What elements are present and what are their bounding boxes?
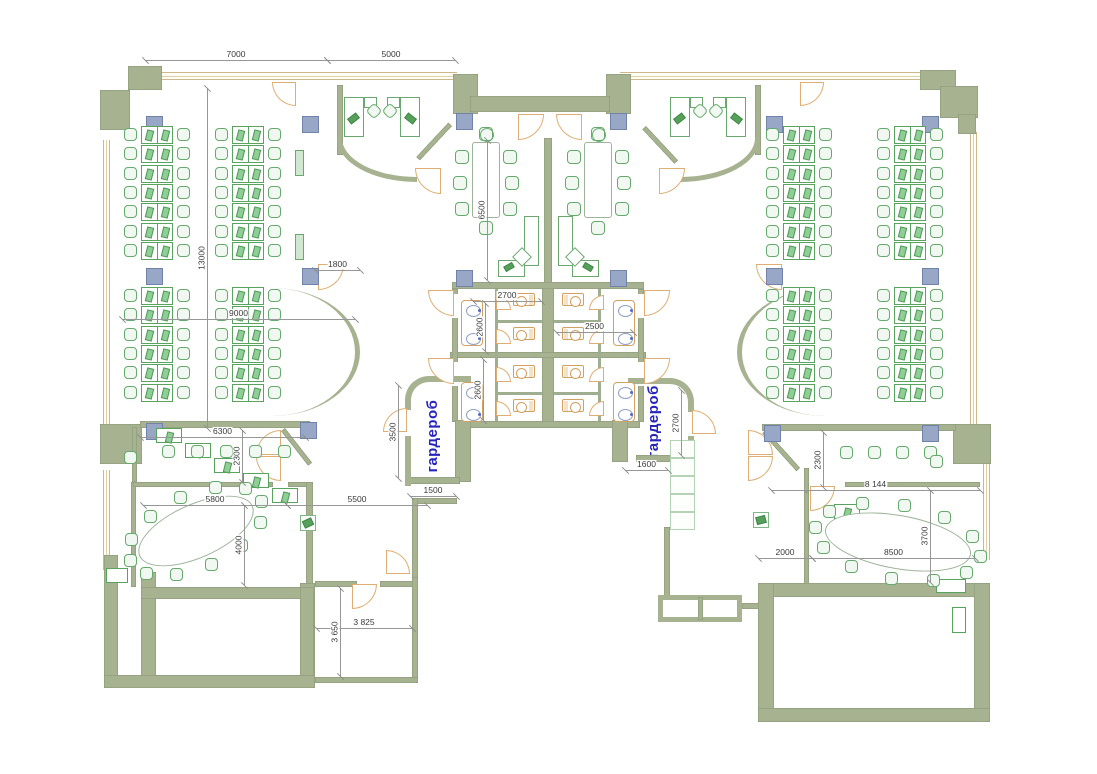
double-desk	[232, 145, 264, 163]
desk-half	[911, 166, 926, 182]
chair	[215, 128, 228, 141]
door-swing	[748, 456, 773, 481]
double-desk	[232, 203, 264, 221]
chair	[177, 328, 190, 341]
chair	[268, 347, 281, 360]
chair	[766, 289, 779, 302]
desk-half	[800, 385, 815, 401]
desk-equipment	[913, 149, 922, 161]
window-band	[143, 72, 457, 80]
desk-half	[800, 166, 815, 182]
double-desk	[894, 126, 926, 144]
chair	[766, 128, 779, 141]
chair	[877, 244, 890, 257]
desk-half	[158, 185, 173, 201]
chair	[479, 221, 493, 235]
dimension-label: 2000	[775, 548, 796, 557]
dimension-label: 2600	[476, 317, 485, 338]
curved-wall	[272, 288, 360, 416]
desk-equipment	[160, 149, 169, 161]
window-band	[620, 72, 942, 80]
chair	[930, 225, 943, 238]
chair	[877, 167, 890, 180]
chair	[455, 150, 469, 164]
desk-equipment	[802, 387, 811, 399]
chair	[930, 455, 943, 468]
chair	[177, 225, 190, 238]
door-swing	[589, 401, 604, 416]
desk-half	[158, 204, 173, 220]
desk-equipment	[145, 168, 154, 180]
toilet-tank	[564, 329, 568, 339]
desk-equipment	[145, 310, 154, 322]
desk-equipment	[252, 476, 261, 488]
desk-equipment	[787, 387, 796, 399]
chair	[503, 202, 517, 216]
desk-half	[895, 166, 911, 182]
desk-half	[249, 224, 264, 240]
desk-half	[233, 243, 249, 259]
desk-half	[142, 288, 158, 304]
chair	[877, 128, 890, 141]
desk-equipment	[802, 290, 811, 302]
desk-equipment	[802, 187, 811, 199]
chair	[877, 289, 890, 302]
desk-half	[895, 365, 911, 381]
center-spine-wall	[544, 138, 552, 288]
chair	[177, 386, 190, 399]
chair	[840, 446, 853, 459]
double-desk	[894, 345, 926, 363]
chair	[819, 244, 832, 257]
chair	[845, 560, 858, 573]
chair	[124, 289, 137, 302]
double-desk	[141, 306, 173, 324]
desk-equipment	[898, 187, 907, 199]
desk-equipment	[251, 245, 260, 257]
chair	[819, 289, 832, 302]
desk-half	[142, 307, 158, 323]
door-swing	[352, 584, 377, 609]
desk	[952, 607, 966, 633]
door-swing	[692, 410, 716, 434]
chair	[930, 128, 943, 141]
dimension-label: 3 825	[352, 618, 375, 627]
desk-equipment	[913, 290, 922, 302]
desk-equipment	[802, 245, 811, 257]
chair	[938, 511, 951, 524]
chair	[191, 445, 204, 458]
desk-equipment	[145, 149, 154, 161]
desk-half	[895, 224, 911, 240]
door-swing	[496, 329, 511, 344]
desk-half	[249, 288, 264, 304]
double-desk	[141, 126, 173, 144]
chair	[565, 176, 579, 190]
wc-partition	[498, 320, 544, 323]
desk-half	[158, 327, 173, 343]
chair	[817, 541, 830, 554]
desk-equipment	[802, 129, 811, 141]
desk-half	[158, 307, 173, 323]
double-desk	[783, 287, 815, 305]
terrace-wall	[758, 708, 990, 722]
desk-half	[142, 346, 158, 362]
desk-equipment	[802, 348, 811, 360]
desk-equipment	[145, 348, 154, 360]
desk-half	[158, 385, 173, 401]
chair	[174, 491, 187, 504]
desk-equipment	[913, 226, 922, 238]
chair	[930, 328, 943, 341]
double-desk	[141, 345, 173, 363]
desk-half	[895, 146, 911, 162]
desk-half	[895, 243, 911, 259]
desk-half	[911, 365, 926, 381]
stool	[592, 128, 606, 142]
conference-table	[820, 503, 975, 582]
desk-equipment	[787, 245, 796, 257]
dimension-label: 9000	[228, 309, 249, 318]
chair	[819, 186, 832, 199]
double-desk	[783, 184, 815, 202]
terrace-wall	[104, 675, 315, 688]
door-swing	[272, 82, 296, 106]
double-desk	[232, 126, 264, 144]
chair	[877, 386, 890, 399]
double-desk	[232, 242, 264, 260]
desk-half	[911, 327, 926, 343]
desk-half	[158, 365, 173, 381]
chair	[823, 505, 836, 518]
desk-half	[911, 385, 926, 401]
chair	[930, 366, 943, 379]
toilet-tank	[529, 367, 533, 377]
chair	[205, 558, 218, 571]
dimension-label: 5800	[205, 495, 226, 504]
curved-wall	[337, 138, 417, 182]
chair	[819, 386, 832, 399]
desk-half	[911, 346, 926, 362]
chair	[567, 202, 581, 216]
dimension-line	[625, 470, 668, 471]
chair	[766, 244, 779, 257]
chair	[215, 225, 228, 238]
desk-half	[800, 204, 815, 220]
dimension-label: 13000	[198, 245, 207, 271]
chair	[856, 497, 869, 510]
desk-equipment	[160, 290, 169, 302]
double-desk	[783, 326, 815, 344]
chair	[278, 445, 291, 458]
dimension-label: 6300	[212, 427, 233, 436]
wall-segment	[417, 498, 457, 504]
chair	[819, 328, 832, 341]
chair	[215, 386, 228, 399]
chair	[930, 244, 943, 257]
double-desk	[141, 165, 173, 183]
desk-equipment	[251, 310, 260, 322]
desk-equipment	[236, 329, 245, 341]
desk-half	[911, 307, 926, 323]
chair	[819, 225, 832, 238]
desk-equipment	[913, 168, 922, 180]
desk-half	[784, 146, 800, 162]
desk-half	[784, 346, 800, 362]
dimension-line	[483, 359, 484, 420]
desk-half	[784, 166, 800, 182]
dimension-line	[315, 270, 360, 271]
desk-half	[895, 204, 911, 220]
desk-equipment	[236, 168, 245, 180]
chair	[177, 244, 190, 257]
desk-equipment	[160, 168, 169, 180]
desk-equipment	[913, 310, 922, 322]
double-desk	[232, 384, 264, 402]
dimension-label: 2300	[814, 449, 823, 470]
door-swing	[644, 290, 670, 316]
chair	[898, 499, 911, 512]
double-desk	[232, 287, 264, 305]
chair	[960, 566, 973, 579]
chair	[170, 568, 183, 581]
dimension-line	[140, 437, 305, 438]
toilet-bowl	[516, 402, 527, 413]
terrace-wall	[758, 583, 774, 722]
chair	[819, 147, 832, 160]
sink	[466, 409, 481, 421]
wall-segment	[804, 492, 809, 584]
wall-segment	[306, 482, 313, 587]
chair	[215, 347, 228, 360]
desk-equipment	[251, 149, 260, 161]
wall-segment	[100, 90, 130, 130]
sink	[618, 305, 633, 317]
desk	[272, 488, 298, 503]
structural-column	[146, 268, 163, 285]
dimension-line	[340, 588, 341, 676]
chair	[215, 366, 228, 379]
desk-half	[233, 224, 249, 240]
window-band	[103, 140, 110, 430]
dimension-label: 2500	[584, 322, 605, 331]
desk-equipment	[787, 310, 796, 322]
desk-half	[800, 288, 815, 304]
diagonal-wall	[416, 123, 452, 161]
dimension-line	[410, 496, 456, 497]
chair	[503, 150, 517, 164]
double-desk	[783, 364, 815, 382]
chair	[766, 366, 779, 379]
dimension-label: 3700	[921, 526, 930, 547]
chair	[877, 347, 890, 360]
double-desk	[894, 242, 926, 260]
desk-half	[895, 346, 911, 362]
chair	[819, 366, 832, 379]
desk-half	[142, 166, 158, 182]
desk-half	[142, 327, 158, 343]
chair	[215, 186, 228, 199]
desk-half	[158, 288, 173, 304]
door-swing	[659, 168, 685, 194]
desk-equipment	[160, 368, 169, 380]
desk-half	[158, 224, 173, 240]
dimension-label: 2300	[233, 446, 242, 467]
toilet-tank	[564, 367, 568, 377]
desk-half	[800, 224, 815, 240]
terrace-wall	[141, 587, 314, 599]
structural-column	[922, 268, 939, 285]
desk-half	[911, 127, 926, 143]
desk-half	[142, 127, 158, 143]
desk-half	[895, 127, 911, 143]
door-swing	[386, 550, 410, 574]
desk-equipment	[898, 245, 907, 257]
chair	[215, 289, 228, 302]
toilet-bowl	[570, 402, 581, 413]
chair	[209, 481, 222, 494]
chair	[177, 347, 190, 360]
desk-half	[911, 243, 926, 259]
desk-equipment	[802, 149, 811, 161]
double-desk	[141, 145, 173, 163]
chair	[930, 147, 943, 160]
chair	[125, 533, 138, 546]
chair	[930, 186, 943, 199]
wardrobe-shelf	[670, 512, 695, 530]
chair	[268, 128, 281, 141]
chair	[268, 225, 281, 238]
chair	[877, 186, 890, 199]
chair	[254, 516, 267, 529]
wall-segment	[804, 468, 809, 492]
desk-half	[800, 127, 815, 143]
desk-half	[800, 327, 815, 343]
chair	[766, 167, 779, 180]
double-desk	[894, 287, 926, 305]
wc-partition	[554, 392, 598, 395]
sink	[618, 387, 633, 399]
double-desk	[141, 384, 173, 402]
sink	[618, 409, 633, 421]
desk-half	[142, 385, 158, 401]
chair	[124, 451, 137, 464]
desk-equipment	[251, 368, 260, 380]
desk-equipment	[160, 129, 169, 141]
chair	[124, 328, 137, 341]
desk-equipment	[236, 226, 245, 238]
wc-partition	[498, 392, 544, 395]
chair	[877, 366, 890, 379]
desk-half	[911, 185, 926, 201]
toilet	[513, 399, 535, 412]
dimension-label: 3 650	[331, 620, 340, 643]
dimension-line	[681, 390, 682, 455]
chair	[615, 150, 629, 164]
double-desk	[141, 326, 173, 344]
toilet-bowl	[516, 368, 527, 379]
chair	[215, 147, 228, 160]
double-desk	[894, 203, 926, 221]
desk-equipment	[898, 348, 907, 360]
chair	[124, 128, 137, 141]
desk	[156, 428, 182, 443]
door-swing	[496, 367, 511, 382]
structural-column	[922, 425, 939, 442]
desk	[936, 579, 966, 593]
door-swing	[589, 367, 604, 382]
dimension-line	[207, 88, 208, 428]
chair	[766, 225, 779, 238]
double-desk	[783, 126, 815, 144]
chair	[766, 147, 779, 160]
desk-half	[249, 365, 264, 381]
toilet	[562, 365, 584, 378]
desk-half	[249, 385, 264, 401]
chair	[455, 202, 469, 216]
curved-wall	[680, 138, 760, 182]
desk-half	[784, 243, 800, 259]
dimension-label: 2700	[672, 412, 681, 433]
desk-half	[142, 185, 158, 201]
desk-half	[784, 204, 800, 220]
toilet	[562, 327, 584, 340]
desk-half	[158, 127, 173, 143]
chair	[966, 530, 979, 543]
toilet-tank	[529, 401, 533, 411]
desk-equipment	[251, 207, 260, 219]
desk-half	[142, 243, 158, 259]
chair	[766, 328, 779, 341]
dimension-line	[771, 490, 980, 491]
chair	[124, 347, 137, 360]
door-swing	[415, 168, 441, 194]
chair	[930, 347, 943, 360]
double-desk	[141, 287, 173, 305]
chair	[177, 186, 190, 199]
elevator-box-divider	[698, 597, 703, 620]
double-desk	[894, 364, 926, 382]
double-desk	[894, 384, 926, 402]
wall-segment	[664, 527, 670, 597]
chair	[268, 244, 281, 257]
chair	[177, 167, 190, 180]
wall-segment	[953, 424, 991, 464]
chair	[124, 205, 137, 218]
chair	[766, 205, 779, 218]
toilet-tank	[529, 329, 533, 339]
dimension-line	[242, 430, 243, 482]
desk-equipment	[898, 129, 907, 141]
desk-half	[233, 146, 249, 162]
wall-mounted-unit	[295, 150, 304, 176]
dimension-line	[244, 505, 245, 585]
desk-equipment	[145, 226, 154, 238]
terrace-wall	[974, 583, 990, 722]
desk-half	[911, 204, 926, 220]
desk-equipment	[913, 387, 922, 399]
chair	[140, 567, 153, 580]
desk-equipment	[802, 168, 811, 180]
desk-equipment	[898, 368, 907, 380]
chair	[268, 147, 281, 160]
chair	[177, 205, 190, 218]
desk-half	[249, 127, 264, 143]
double-desk	[232, 184, 264, 202]
desk-equipment	[160, 329, 169, 341]
desk-equipment	[236, 348, 245, 360]
double-desk	[232, 364, 264, 382]
